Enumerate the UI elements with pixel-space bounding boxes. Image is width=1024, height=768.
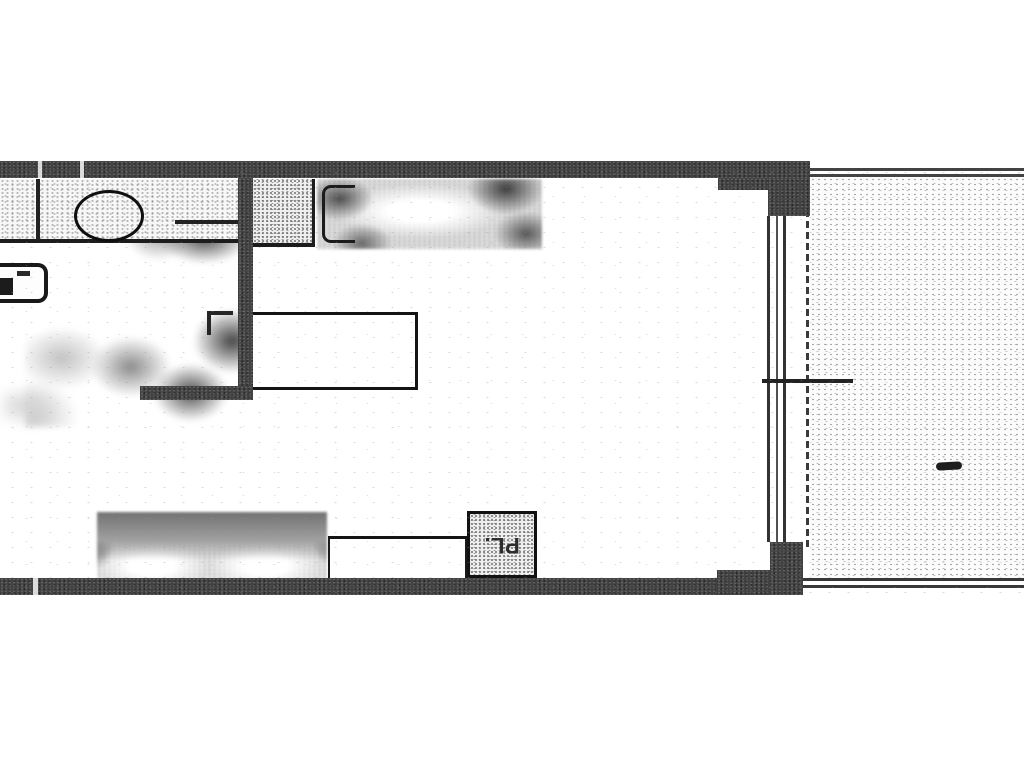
counter-divider-line	[36, 179, 40, 240]
balcony-top-line-inner	[806, 174, 1024, 177]
wall-top	[0, 161, 810, 178]
appliance-mark	[0, 278, 13, 295]
wall-bottom	[0, 578, 717, 595]
wall-top-right-pillar	[768, 178, 810, 216]
corner-bracket-mark	[207, 311, 233, 335]
headboard-cabinet	[253, 179, 315, 247]
scan-crease-top-1	[38, 161, 42, 178]
door-handle-line	[762, 379, 853, 383]
closet-label: PL.	[484, 532, 520, 558]
balcony-top-line-outer	[806, 168, 1024, 171]
center-table	[248, 312, 418, 390]
balcony-small-mark	[936, 461, 962, 470]
appliance-dash	[17, 271, 30, 276]
scan-crease-bottom	[33, 578, 38, 595]
balcony-terrace	[810, 177, 1024, 578]
wall-bottom-step	[717, 570, 770, 595]
sofa	[97, 512, 327, 579]
kitchen-blur-tail	[0, 388, 70, 433]
balcony-bottom-line-outer	[800, 585, 1024, 588]
counter-shelf-line	[175, 220, 238, 224]
kitchen-sink-oval	[74, 190, 144, 242]
bed-headboard-outline	[322, 185, 355, 243]
floor-plan-scan: PL.	[0, 0, 1024, 768]
closet-pl: PL.	[467, 511, 537, 578]
wall-kitchen-partition	[238, 178, 253, 400]
scan-crease-top-2	[80, 161, 84, 178]
kitchen-appliance	[0, 263, 48, 303]
wall-kitchen-bottom	[140, 386, 253, 400]
balcony-bottom-line-inner	[800, 578, 1024, 581]
side-table	[328, 536, 467, 581]
wall-bottom-right-pillar	[770, 542, 803, 595]
